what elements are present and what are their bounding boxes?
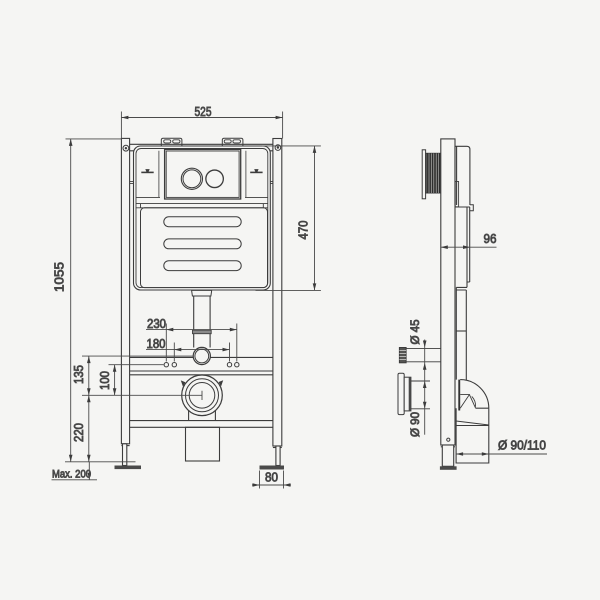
svg-text:180: 180 bbox=[147, 336, 166, 351]
svg-text:1055: 1055 bbox=[52, 262, 67, 292]
svg-text:230: 230 bbox=[147, 316, 166, 331]
svg-text:Ø 45: Ø 45 bbox=[408, 319, 422, 344]
svg-text:80: 80 bbox=[265, 470, 278, 485]
svg-text:96: 96 bbox=[484, 231, 497, 246]
svg-text:470: 470 bbox=[296, 221, 311, 240]
svg-text:135: 135 bbox=[71, 365, 86, 384]
svg-text:Ø 90/110: Ø 90/110 bbox=[498, 438, 546, 453]
svg-text:Max. 200: Max. 200 bbox=[52, 469, 91, 481]
svg-text:525: 525 bbox=[195, 104, 212, 119]
svg-text:220: 220 bbox=[71, 423, 86, 442]
svg-text:Ø 90: Ø 90 bbox=[408, 412, 422, 437]
svg-text:100: 100 bbox=[97, 371, 112, 390]
